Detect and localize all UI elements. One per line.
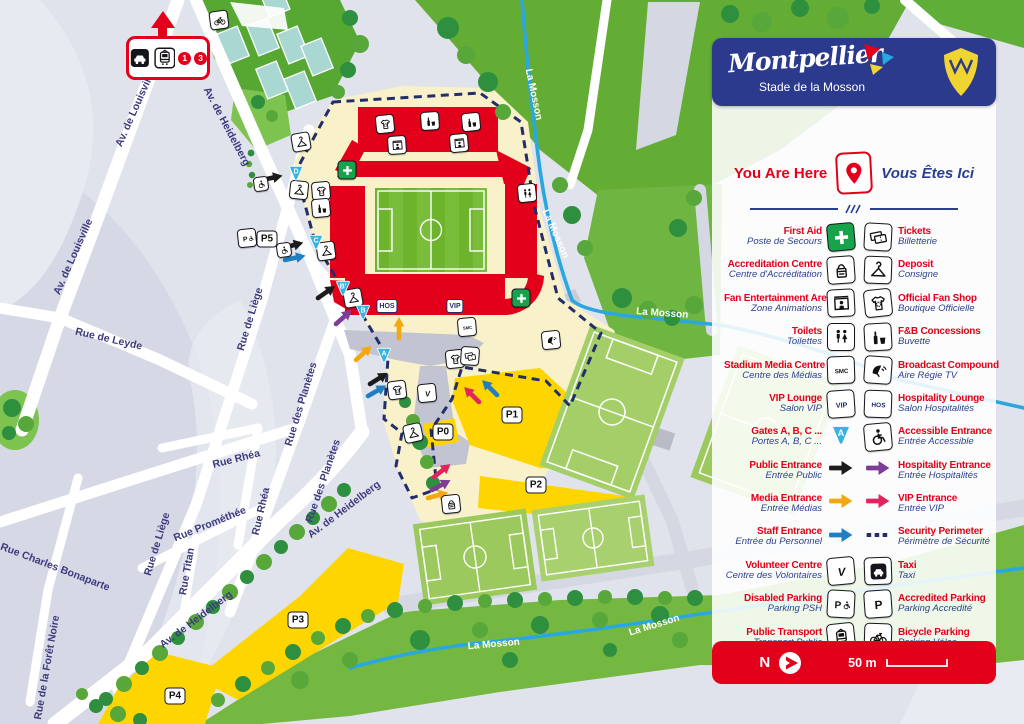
legend-entry-label: Fan Entertainment AreaZone Animations xyxy=(724,293,826,315)
svg-text:SMC: SMC xyxy=(834,368,848,375)
legend-entry-label: Accreditation CentreCentre d'Accréditati… xyxy=(724,259,826,281)
stadium-map-page: Av. de LouisvilleAv. de LouisvilleRue de… xyxy=(0,0,1024,724)
legend-entry-label: Broadcast CompoundAire Régie TV xyxy=(893,360,999,382)
legend-divider xyxy=(712,204,996,214)
accreditation-icon xyxy=(826,255,856,285)
tram-line-1-badge: 1 xyxy=(178,52,191,65)
arrow-pink-icon xyxy=(865,488,891,519)
legend-label-fr: Zone Animations xyxy=(724,304,822,315)
legend-row: Gates A, B, C ...Portes A, B, C ...AAcce… xyxy=(712,420,996,453)
legend-entry-label: TicketsBilletterie xyxy=(893,226,996,248)
logo-triangles-icon xyxy=(860,44,894,76)
legend-entry-label: Media EntranceEntrée Médias xyxy=(724,493,826,515)
legend-row: Staff EntranceEntrée du PersonnelSecurit… xyxy=(712,521,996,554)
legend-entry-label: Stadium Media CentreCentre des Médias xyxy=(724,360,826,382)
you-are-here-pin-icon xyxy=(835,151,873,195)
legend-label-fr: Entrée du Personnel xyxy=(724,537,822,548)
legend-label-fr: Portes A, B, C ... xyxy=(724,437,822,448)
svg-text:HOS: HOS xyxy=(871,401,886,409)
legend-panel: Montpellier Stade de la Mosson You Are H… xyxy=(712,38,996,681)
legend-row: ToiletsToilettesF&B ConcessionsBuvette xyxy=(712,320,996,353)
toilets-icon xyxy=(827,323,855,351)
legend-label-fr: Centre des Médias xyxy=(724,371,822,382)
svg-text:P: P xyxy=(834,600,842,611)
legend-label-fr: Entrée Accessible xyxy=(898,437,996,448)
legend-label-fr: Centre d'Accréditation xyxy=(724,270,822,281)
legend-row: Fan Entertainment AreaZone AnimationsOff… xyxy=(712,287,996,320)
parking-icon: P xyxy=(863,589,893,619)
legend-row: First AidPoste de SecoursTicketsBillette… xyxy=(712,220,996,253)
legend-label-fr: Billetterie xyxy=(898,237,996,248)
smc-icon: SMC xyxy=(827,356,856,385)
legend-entry-label: Public EntranceEntrée Public xyxy=(724,460,826,482)
you-are-here-row: You Are Here Vous Êtes Ici xyxy=(712,152,996,194)
legend-label-fr: Taxi xyxy=(898,571,996,582)
volunteer-icon: V xyxy=(826,555,856,585)
legend-row: Disabled ParkingParking PSHPPAccredited … xyxy=(712,587,996,620)
legend-row: Public EntranceEntrée PublicHospitality … xyxy=(712,454,996,487)
legend-label-fr: Boutique Officielle xyxy=(898,304,996,315)
legend-label-fr: Entrée Hospitalités xyxy=(898,471,996,482)
stadium-pitch xyxy=(375,188,487,272)
legend-entry-label: Hospitality LoungeSalon Hospitalités xyxy=(893,393,996,415)
vip-icon: VIP xyxy=(826,389,856,419)
legend-label-en: Stadium Media Centre xyxy=(724,360,822,371)
legend-rows: First AidPoste de SecoursTicketsBillette… xyxy=(712,220,996,654)
accessible-icon xyxy=(863,422,893,452)
legend-entry-label: Official Fan ShopBoutique Officielle xyxy=(893,293,996,315)
legend-label-fr: Entrée Public xyxy=(724,471,822,482)
legend-entry-label: Accessible EntranceEntrée Accessible xyxy=(893,426,996,448)
you-are-here-label-en: You Are Here xyxy=(734,165,827,182)
legend-entry-label: DepositConsigne xyxy=(893,259,996,281)
first-aid-icon xyxy=(826,222,856,252)
north-label: N xyxy=(759,654,770,671)
legend-label-fr: Consigne xyxy=(898,270,996,281)
legend-label-en: Public Transport xyxy=(724,627,822,638)
divider-hatch-icon xyxy=(844,204,864,214)
legend-label-fr: Salon Hospitalités xyxy=(898,404,996,415)
legend-entry-label: VIP LoungeSalon VIP xyxy=(724,393,826,415)
legend-label-fr: Périmètre de Sécurité xyxy=(898,537,996,548)
legend-entry-label: Disabled ParkingParking PSH xyxy=(724,593,826,615)
legend-entry-label: Hospitality EntranceEntrée Hospitalités xyxy=(893,460,996,482)
parking-disabled-icon: P xyxy=(826,589,855,618)
hos-icon: HOS xyxy=(864,389,893,418)
tickets-icon xyxy=(863,222,892,251)
tram-line-3-badge: 3 xyxy=(194,52,207,65)
legend-label-fr: Salon VIP xyxy=(724,404,822,415)
legend-entry-label: First AidPoste de Secours xyxy=(724,226,826,248)
legend-label-fr: Entrée Médias xyxy=(724,504,822,515)
arrow-black-icon xyxy=(828,455,854,486)
stadium-subtitle: Stade de la Mosson xyxy=(712,80,912,94)
legend-row: Media EntranceEntrée MédiasVIP EntranceE… xyxy=(712,487,996,520)
svg-text:VIP: VIP xyxy=(835,400,847,409)
legend-entry-label: Accredited ParkingParking Accredité xyxy=(893,593,996,615)
legend-label-en: Bicycle Parking xyxy=(898,627,996,638)
legend-entry-label: VIP EntranceEntrée VIP xyxy=(893,493,996,515)
legend-label-fr: Buvette xyxy=(898,337,996,348)
taxi-icon xyxy=(864,556,893,585)
legend-row: VIP LoungeSalon VIPVIPHOSHospitality Lou… xyxy=(712,387,996,420)
legend-entry-label: ToiletsToilettes xyxy=(724,326,826,348)
legend-entry-label: Gates A, B, C ...Portes A, B, C ... xyxy=(724,426,826,448)
legend-entry-label: TaxiTaxi xyxy=(893,560,996,582)
svg-text:P: P xyxy=(874,597,883,612)
legend-footer: N 50 m xyxy=(712,641,996,684)
legend-label-fr: Aire Régie TV xyxy=(898,371,999,382)
legend-entry-label: Volunteer CentreCentre des Volontaires xyxy=(724,560,826,582)
scale-label: 50 m xyxy=(848,656,877,670)
scale-bar-icon xyxy=(885,657,949,669)
taxi-icon xyxy=(129,47,151,69)
legend-header: Montpellier Stade de la Mosson xyxy=(712,38,996,106)
arrow-yellow-icon xyxy=(828,488,854,519)
you-are-here-label-fr: Vous Êtes Ici xyxy=(881,165,974,182)
legend-entry-label: Staff EntranceEntrée du Personnel xyxy=(724,526,826,548)
fan-shop-icon xyxy=(863,288,894,319)
legend-row: Accreditation CentreCentre d'Accréditati… xyxy=(712,253,996,286)
legend-entry-label: F&B ConcessionsBuvette xyxy=(893,326,996,348)
legend-row: Volunteer CentreCentre des VolontairesVT… xyxy=(712,554,996,587)
legend-label-fr: Parking Accredité xyxy=(898,604,996,615)
legend-label-fr: Toilettes xyxy=(724,337,822,348)
public-transport-stop: 1 3 xyxy=(126,36,210,80)
north-arrow-icon xyxy=(778,651,802,675)
gate-icon: A xyxy=(828,422,854,453)
arrow-purple-icon xyxy=(865,455,891,486)
legend-label-fr: Entrée VIP xyxy=(898,504,996,515)
legend-label-fr: Centre des Volontaires xyxy=(724,571,822,582)
legend-entry-label: Security PerimeterPérimètre de Sécurité xyxy=(893,526,996,548)
legend-label-en: Broadcast Compound xyxy=(898,360,999,371)
arrow-blue-icon xyxy=(828,522,854,553)
fnb-icon xyxy=(863,322,892,351)
dashed-icon xyxy=(865,522,891,553)
tram-icon xyxy=(154,47,176,69)
svg-text:A: A xyxy=(838,427,845,437)
deposit-icon xyxy=(864,256,893,285)
svg-text:V: V xyxy=(837,566,847,579)
broadcast-icon xyxy=(863,355,893,385)
legend-label-fr: Poste de Secours xyxy=(724,237,822,248)
legend-label-fr: Parking PSH xyxy=(724,604,822,615)
club-emblem-icon xyxy=(940,46,982,98)
fan-entertainment-icon xyxy=(826,289,855,318)
legend-row: Stadium Media CentreCentre des MédiasSMC… xyxy=(712,354,996,387)
